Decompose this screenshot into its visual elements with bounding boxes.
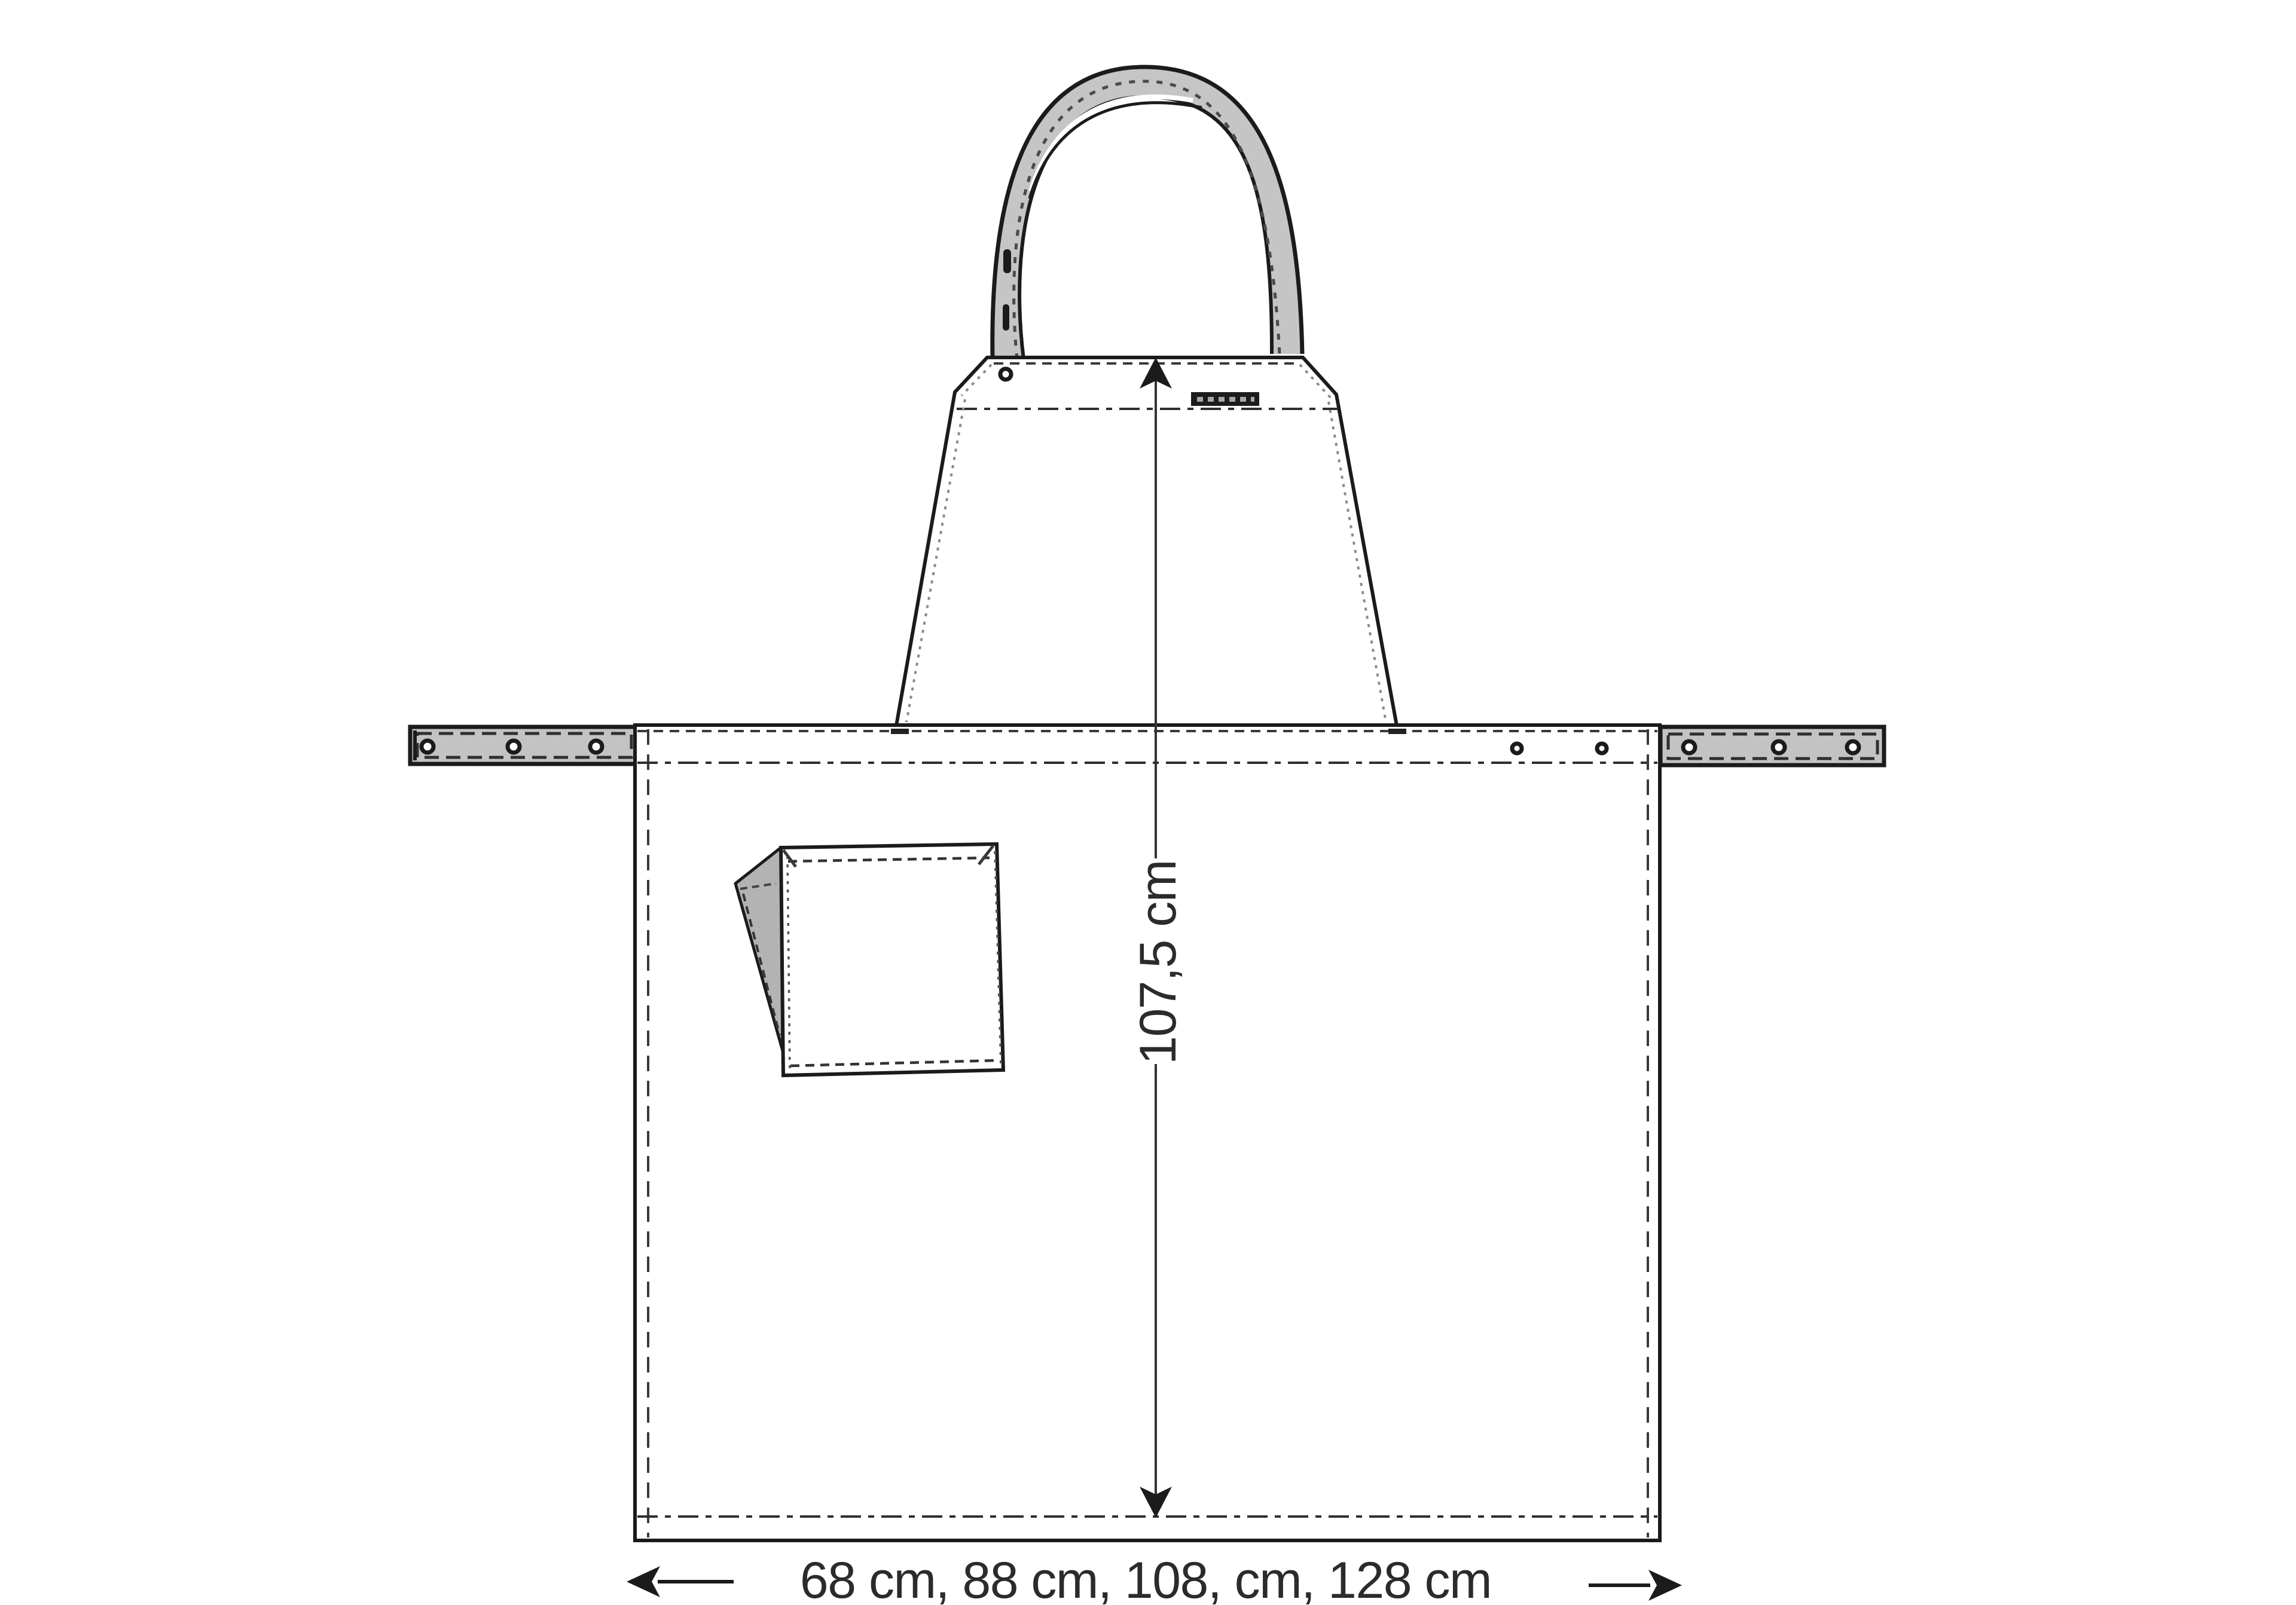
svg-text:68 cm, 88 cm, 108, cm, 128 cm: 68 cm, 88 cm, 108, cm, 128 cm (800, 1552, 1491, 1605)
svg-text:107,5 cm: 107,5 cm (1129, 860, 1187, 1065)
